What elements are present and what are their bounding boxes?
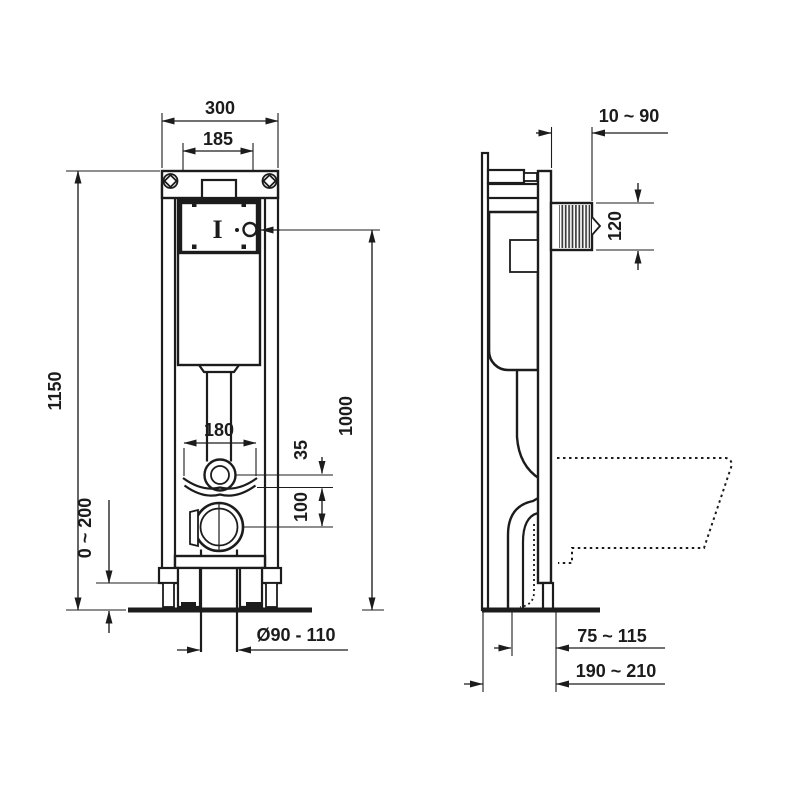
dim-drain-offset: 100 bbox=[244, 489, 333, 528]
bottom-cross-bar bbox=[175, 556, 265, 568]
dim-foot-adjust: 0 ~ 200 bbox=[75, 498, 176, 633]
dim-wall-clearance: 10 ~ 90 bbox=[536, 106, 668, 201]
svg-text:185: 185 bbox=[203, 129, 233, 149]
flush-bend bbox=[205, 460, 236, 491]
svg-text:10 ~ 90: 10 ~ 90 bbox=[599, 106, 660, 126]
svg-text:300: 300 bbox=[205, 98, 235, 118]
dim-bend-offset: 35 bbox=[237, 440, 334, 488]
svg-text:0 ~ 200: 0 ~ 200 bbox=[75, 498, 95, 559]
top-bar-notch bbox=[202, 180, 236, 198]
installation-frame-drawing: I bbox=[0, 0, 800, 800]
svg-text:75 ~ 115: 75 ~ 115 bbox=[577, 626, 647, 646]
svg-text:35: 35 bbox=[291, 440, 311, 460]
svg-text:100: 100 bbox=[291, 492, 311, 522]
right-rail-sleeve bbox=[262, 568, 281, 583]
dim-overall-height: 1150 bbox=[45, 171, 160, 610]
dim-drain-wall-distance: 75 ~ 115 bbox=[494, 626, 665, 648]
pipe-clamp bbox=[190, 510, 198, 546]
svg-text:120: 120 bbox=[605, 211, 625, 241]
svg-text:190 ~ 210: 190 ~ 210 bbox=[576, 661, 657, 681]
flush-shaft-box bbox=[551, 203, 600, 250]
cistern-inner-detail bbox=[510, 240, 538, 272]
dim-shaft-height: 120 bbox=[596, 183, 654, 270]
front-rail bbox=[538, 171, 551, 583]
left-rail bbox=[162, 185, 175, 583]
dim-drain-diameter: Ø90 - 110 bbox=[177, 625, 348, 650]
back-rail bbox=[482, 153, 488, 610]
right-rail bbox=[265, 185, 278, 583]
left-leg bbox=[178, 568, 200, 607]
flush-pipe-side bbox=[517, 370, 540, 479]
side-view: 10 ~ 90 120 75 ~ 115 190 ~ 210 bbox=[464, 106, 732, 692]
dim-frame-depth: 190 ~ 210 bbox=[464, 661, 665, 684]
flush-plate-mark: I bbox=[212, 215, 222, 244]
svg-text:1000: 1000 bbox=[336, 396, 356, 436]
svg-text:180: 180 bbox=[204, 420, 234, 440]
front-view: I bbox=[45, 98, 384, 652]
cistern-side bbox=[489, 212, 538, 370]
svg-text:1150: 1150 bbox=[45, 371, 65, 410]
right-leg bbox=[240, 568, 262, 607]
toilet-bowl-outline bbox=[557, 458, 732, 563]
dim-plate-width: 185 bbox=[183, 129, 253, 170]
front-frame-structure: I bbox=[128, 171, 312, 652]
svg-text:Ø90 - 110: Ø90 - 110 bbox=[256, 625, 335, 645]
right-foot-extension bbox=[266, 583, 277, 607]
left-foot-extension bbox=[163, 583, 174, 607]
wall-bracket bbox=[488, 170, 540, 198]
left-rail-sleeve bbox=[159, 568, 178, 583]
front-rail-foot bbox=[543, 583, 553, 610]
